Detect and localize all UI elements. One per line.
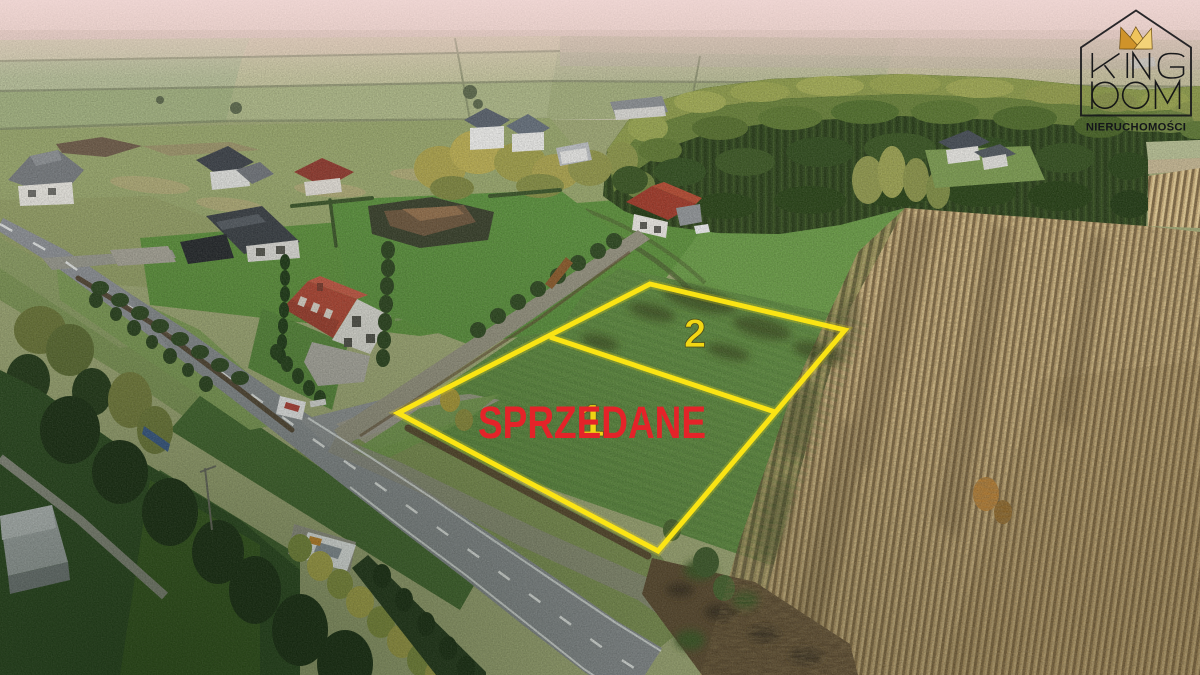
svg-text:NIERUCHOMOŚCI: NIERUCHOMOŚCI <box>1086 121 1186 134</box>
svg-text:SPRZEDANE: SPRZEDANE <box>478 397 706 448</box>
svg-text:2: 2 <box>684 312 706 356</box>
